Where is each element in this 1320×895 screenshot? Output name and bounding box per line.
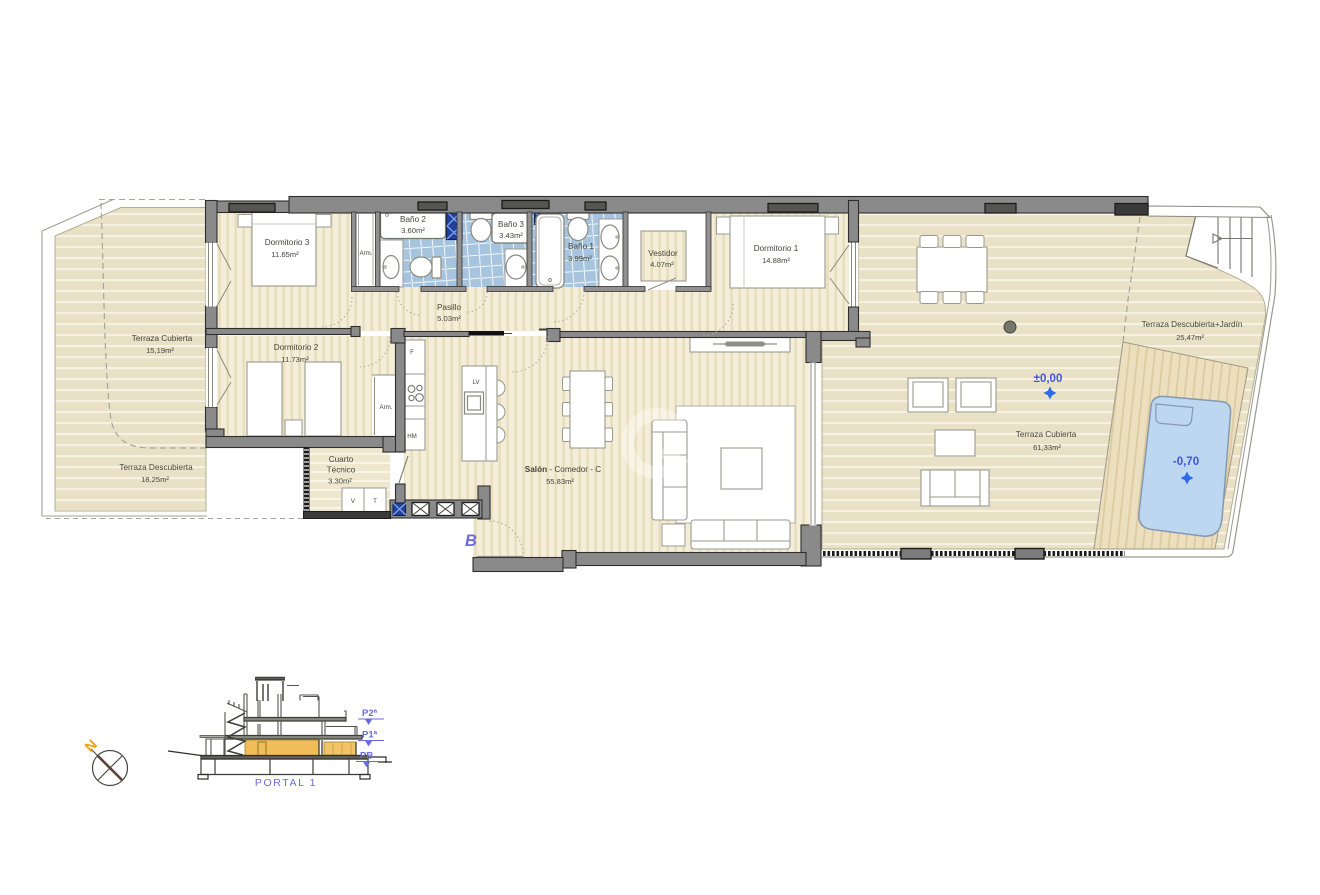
svg-text:Arm.: Arm. (379, 404, 392, 411)
svg-text:Terraza Descubierta+Jardín: Terraza Descubierta+Jardín (1142, 320, 1243, 329)
svg-text:14.88m²: 14.88m² (762, 256, 790, 265)
svg-text:55.83m²: 55.83m² (546, 477, 574, 486)
svg-text:B: B (465, 532, 477, 550)
svg-text:18,25m²: 18,25m² (141, 475, 169, 484)
svg-text:-0,70: -0,70 (1173, 456, 1199, 468)
svg-text:±0,00: ±0,00 (1034, 373, 1063, 385)
svg-text:PORTAL 1: PORTAL 1 (255, 777, 317, 789)
svg-text:Técnico: Técnico (327, 466, 356, 475)
svg-text:N: N (82, 737, 101, 756)
svg-text:3.30m²: 3.30m² (328, 477, 352, 486)
svg-text:P1ª: P1ª (362, 730, 378, 741)
svg-text:3.60m²: 3.60m² (401, 226, 425, 235)
svg-text:5.03m²: 5.03m² (437, 314, 461, 323)
svg-text:Pasillo: Pasillo (437, 303, 462, 312)
svg-text:Dormitorio 3: Dormitorio 3 (265, 238, 310, 247)
svg-text:3.43m²: 3.43m² (499, 231, 523, 240)
svg-text:Vestidor: Vestidor (648, 249, 678, 258)
svg-text:4.07m²: 4.07m² (650, 260, 674, 269)
svg-text:T: T (373, 498, 377, 505)
svg-text:11.65m²: 11.65m² (271, 250, 299, 259)
svg-text:Terraza Descubierta: Terraza Descubierta (119, 463, 193, 472)
svg-text:Dormitorio 1: Dormitorio 1 (754, 244, 799, 253)
svg-text:Cuarto: Cuarto (329, 455, 354, 464)
svg-text:HM: HM (407, 433, 417, 440)
svg-text:15,19m²: 15,19m² (146, 346, 174, 355)
svg-text:Terraza Cubierta: Terraza Cubierta (1016, 430, 1077, 439)
svg-text:Arm.: Arm. (359, 250, 372, 257)
svg-text:61,33m²: 61,33m² (1033, 443, 1061, 452)
svg-text:Salón - Comedor - C: Salón - Comedor - C (525, 465, 602, 474)
svg-text:Terraza Cubierta: Terraza Cubierta (132, 334, 193, 343)
svg-text:Baño 3: Baño 3 (498, 220, 524, 229)
svg-text:25,47m²: 25,47m² (1176, 333, 1204, 342)
svg-text:11.73m²: 11.73m² (281, 355, 309, 364)
svg-text:Baño 2: Baño 2 (400, 215, 426, 224)
svg-text:Dormitorio 2: Dormitorio 2 (274, 343, 319, 352)
svg-text:PB: PB (360, 751, 373, 762)
svg-text:LV: LV (472, 379, 480, 386)
svg-text:P2ª: P2ª (362, 708, 378, 719)
svg-text:Baño 1: Baño 1 (568, 242, 594, 251)
svg-text:3.99m²: 3.99m² (568, 254, 592, 263)
svg-text:F: F (410, 349, 414, 356)
